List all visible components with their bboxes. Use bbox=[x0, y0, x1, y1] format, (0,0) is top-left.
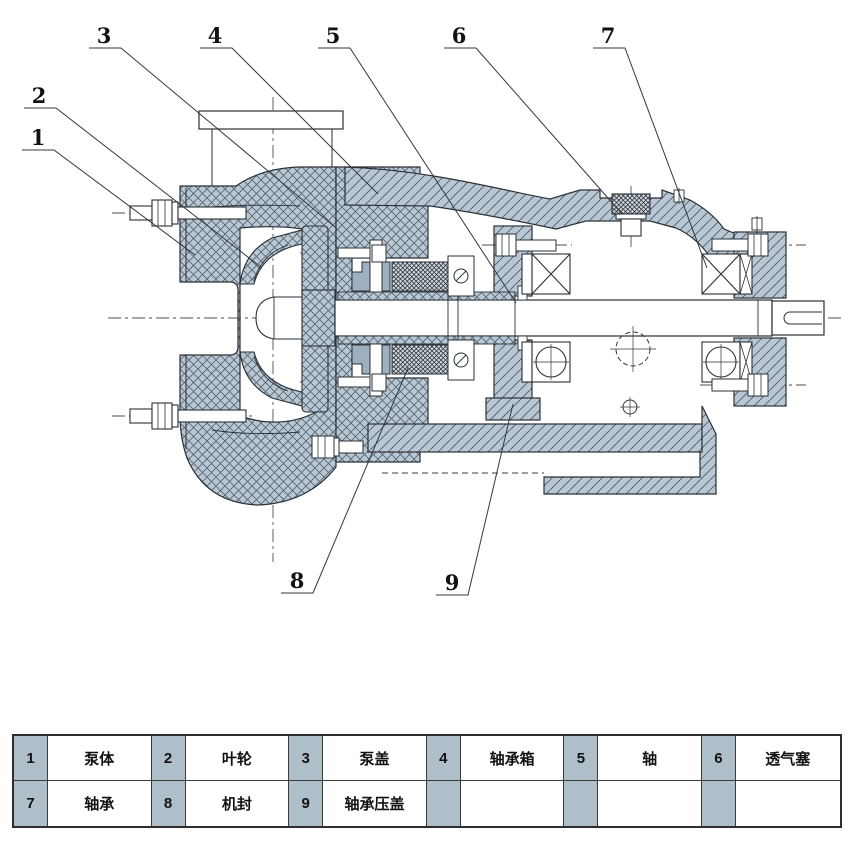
impeller-nut bbox=[256, 297, 302, 339]
pump-diagram-page: 1 2 3 4 5 6 7 8 bbox=[0, 0, 850, 850]
callout-number: 3 bbox=[97, 23, 112, 48]
part-number-cell: 4 bbox=[427, 736, 461, 781]
bearing-left-bottom bbox=[522, 342, 570, 382]
callout-number: 9 bbox=[445, 570, 460, 595]
impeller bbox=[240, 226, 335, 412]
part-number-cell: 6 bbox=[702, 736, 736, 781]
seal-spring-bottom bbox=[392, 345, 448, 374]
part-number-cell: 8 bbox=[152, 781, 186, 826]
part-number-cell: 2 bbox=[152, 736, 186, 781]
part-number-cell: 5 bbox=[564, 736, 598, 781]
part-number-cell bbox=[702, 781, 736, 826]
bearing-box-bottom-wall bbox=[368, 424, 702, 452]
part-name-cell: 轴承压盖 bbox=[323, 781, 427, 826]
callout-number: 1 bbox=[31, 125, 46, 150]
part-number-cell: 3 bbox=[289, 736, 323, 781]
part-name-cell: 机封 bbox=[186, 781, 290, 826]
shaft-sleeve-top bbox=[338, 292, 515, 300]
part-number-cell bbox=[564, 781, 598, 826]
seal-spring-top bbox=[392, 262, 448, 291]
shaft-sleeve-bottom bbox=[338, 336, 515, 344]
callout-number: 4 bbox=[208, 23, 223, 48]
part-name-cell bbox=[736, 781, 840, 826]
callout-number: 5 bbox=[326, 23, 341, 48]
part-name-cell bbox=[598, 781, 702, 826]
parts-table: 1 泵体 2 叶轮 3 泵盖 4 轴承箱 5 轴 6 透气塞 7 轴承 8 机封… bbox=[12, 734, 842, 828]
oil-sight bbox=[610, 326, 656, 417]
part-name-cell: 轴 bbox=[598, 736, 702, 781]
part-name-cell bbox=[461, 781, 565, 826]
part-name-cell: 轴承 bbox=[48, 781, 152, 826]
part-name-cell: 叶轮 bbox=[186, 736, 290, 781]
callout-number: 7 bbox=[601, 23, 616, 48]
part-number-cell bbox=[427, 781, 461, 826]
callout-1: 1 bbox=[22, 125, 195, 255]
vent-plug-knurled-head bbox=[612, 194, 650, 214]
part-number-cell: 1 bbox=[14, 736, 48, 781]
pump-cross-section-drawing: 1 2 3 4 5 6 7 8 bbox=[0, 0, 850, 850]
bearing-right-bottom bbox=[702, 342, 752, 382]
part-number-cell: 7 bbox=[14, 781, 48, 826]
part-name-cell: 轴承箱 bbox=[461, 736, 565, 781]
part-number-cell: 9 bbox=[289, 781, 323, 826]
vent-plug bbox=[612, 194, 650, 236]
callout-number: 8 bbox=[290, 568, 305, 593]
callout-number: 2 bbox=[32, 83, 47, 108]
callout-number: 6 bbox=[452, 23, 467, 48]
part-name-cell: 透气塞 bbox=[736, 736, 840, 781]
bearing-left-top bbox=[522, 254, 570, 294]
bearing-right-top bbox=[702, 254, 752, 294]
part-name-cell: 泵盖 bbox=[323, 736, 427, 781]
part-name-cell: 泵体 bbox=[48, 736, 152, 781]
